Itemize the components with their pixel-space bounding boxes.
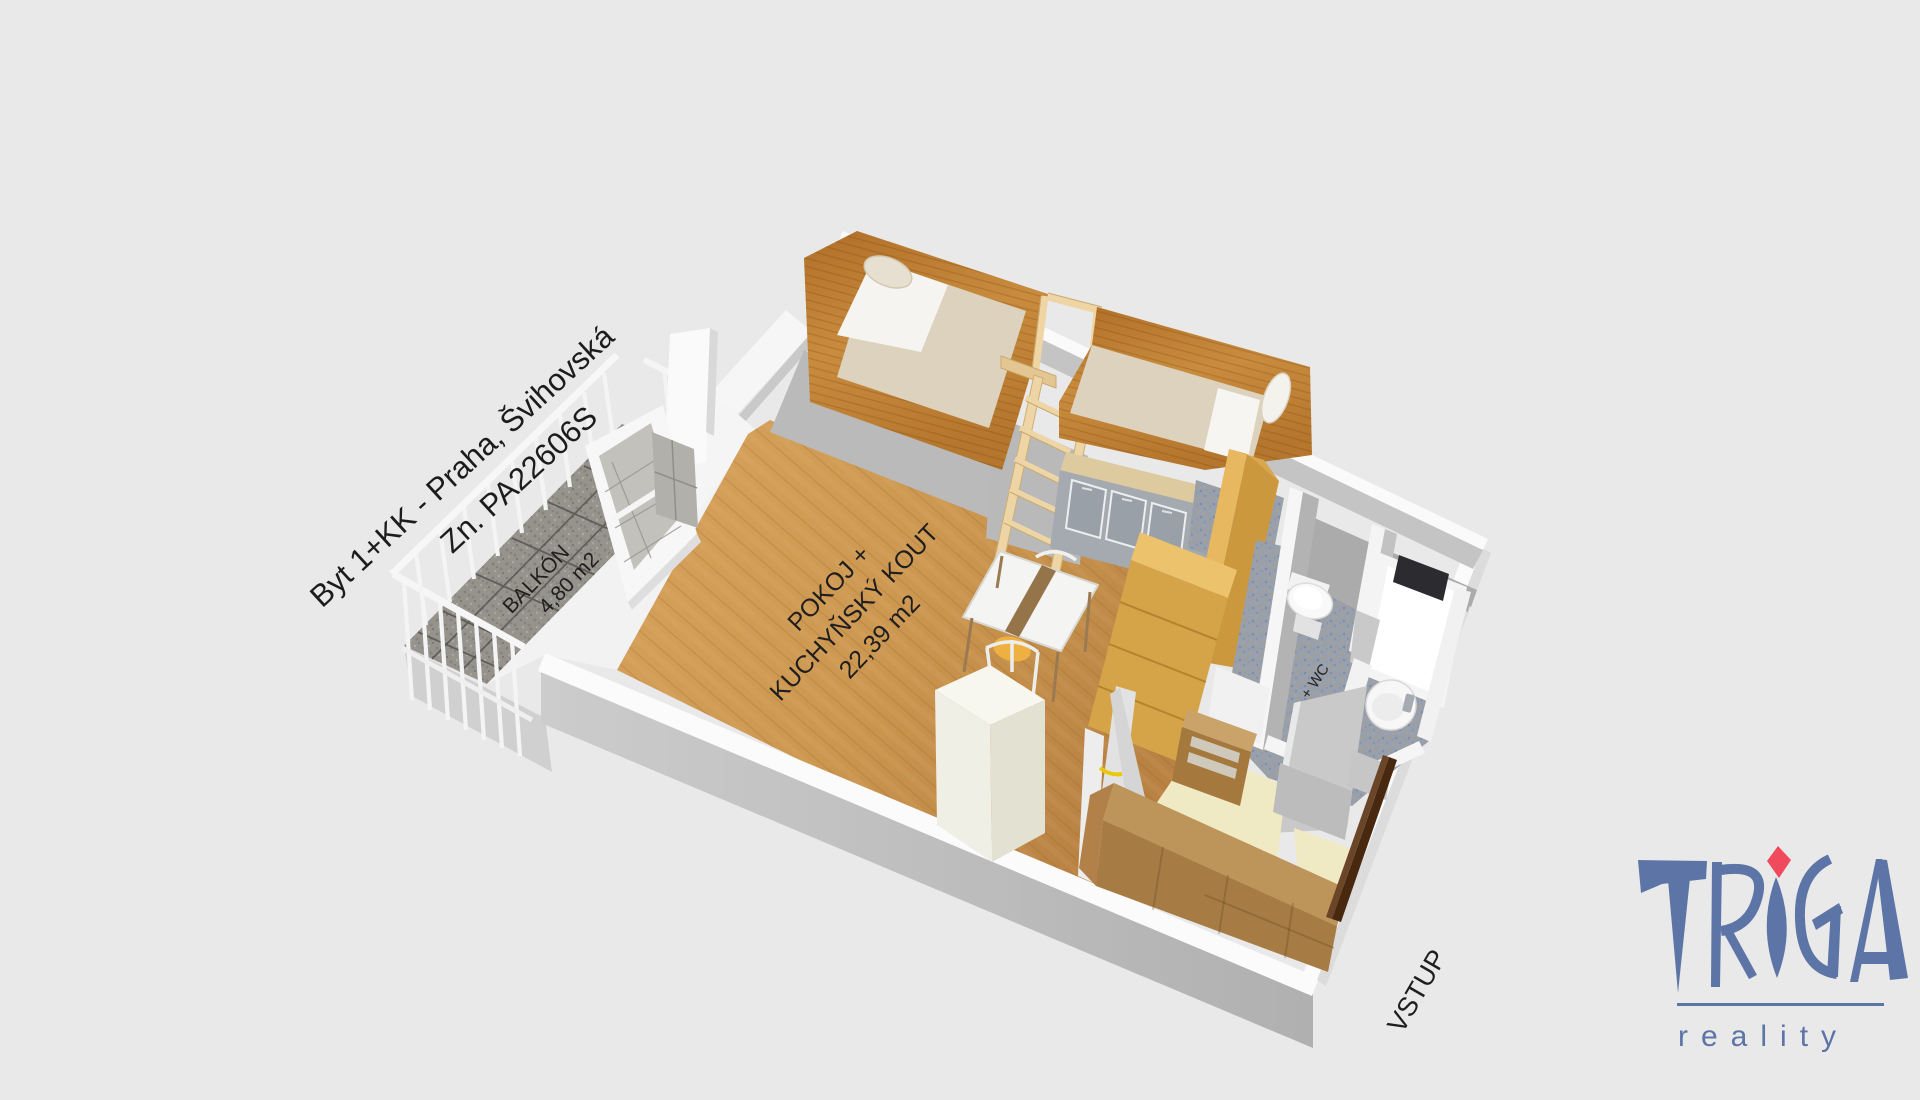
svg-text:reality: reality <box>1678 1020 1849 1053</box>
